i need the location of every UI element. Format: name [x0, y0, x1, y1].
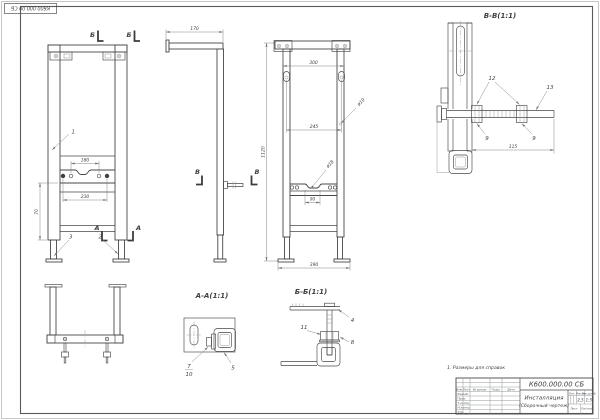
assembly-drawing: К600.000.00 СБ Б Б: [0, 0, 600, 420]
row-tkontr: Т.контр.: [457, 401, 471, 405]
col-list: Лист: [463, 388, 471, 392]
callout-2-label: 2: [99, 235, 103, 241]
callout-9b-label: 9: [532, 136, 536, 142]
section-a-label-right: А: [135, 224, 141, 232]
col-podp: Подп.: [492, 388, 501, 392]
section-a-label-left: А: [93, 224, 99, 232]
dim-390-label: 390: [310, 262, 319, 268]
bolt-right: [105, 174, 109, 178]
corner-stamp-docnumber: К600.000.00 СБ: [10, 5, 50, 11]
section-v-label-right: В: [255, 168, 260, 176]
doc-type: (Сборочный чертеж): [519, 403, 569, 409]
col-doc: № докум.: [473, 388, 487, 392]
row-utv: Утв.: [458, 410, 464, 414]
callout-12-label: 12: [489, 76, 496, 82]
section-aa-title: А-А(1:1): [195, 292, 229, 300]
sheet-edge: [2, 2, 599, 419]
callout-4-label: 4: [351, 318, 355, 324]
dim-180-label: 180: [81, 158, 90, 164]
section-b-label-left: Б: [90, 31, 95, 39]
section-vv-title: В-В(1:1): [484, 12, 517, 20]
dim-70-label: 70: [34, 209, 40, 215]
bolt-left: [61, 174, 65, 178]
dim-115-label: 115: [509, 144, 518, 150]
callout-9a-label: 9: [485, 136, 489, 142]
row-razrab: Разраб.: [458, 392, 469, 396]
col-data: Дата: [507, 388, 515, 392]
lit-label: Лит.: [569, 391, 576, 395]
dim-230-label: 230: [81, 194, 90, 200]
section-v-label-left: В: [195, 168, 200, 176]
callout-11-label: 11: [301, 325, 308, 331]
callout-13-label: 13: [547, 85, 554, 91]
titleblock-doc-number: К600.000.00 СБ: [529, 381, 585, 389]
product-name: Инсталляция: [525, 396, 565, 402]
section-bb-title: Б-Б(1:1): [295, 288, 328, 296]
scale-value: 1:5: [586, 398, 593, 403]
callout-8-label: 8: [351, 340, 355, 346]
row-nkontr: Н.контр.: [458, 406, 471, 410]
dim-300-label: 300: [309, 60, 318, 66]
section-b-label-right: Б: [127, 31, 132, 39]
row-prov: Пров.: [458, 397, 466, 401]
sheets-label: Листов: [581, 407, 592, 411]
sheet-label: Лист: [570, 407, 578, 411]
dim-170-label: 170: [190, 26, 199, 32]
callout-7-label: 7: [187, 364, 191, 370]
callout-5-label: 5: [231, 366, 235, 372]
callout-3-label: 3: [69, 235, 73, 241]
drawing-sheet: К600.000.00 СБ Б Б: [0, 0, 600, 420]
mass-value: 2,5: [577, 398, 584, 403]
scale-label: Масштаб: [582, 391, 596, 395]
dim-90-label: 90: [310, 197, 316, 202]
callout-1-label: 1: [72, 130, 76, 136]
callout-10-label: 10: [186, 372, 193, 378]
dim-245-label: 245: [310, 124, 319, 130]
drawing-note: 1. Размеры для справок: [447, 365, 505, 371]
dim-1120-label: 1120: [261, 146, 267, 158]
